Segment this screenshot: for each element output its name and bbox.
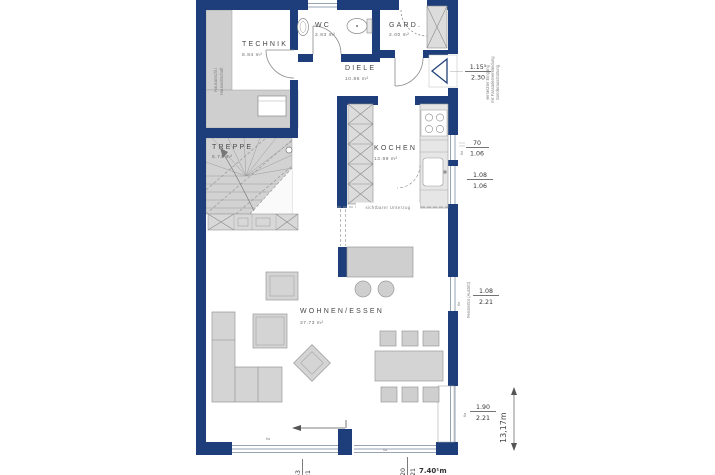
kitchen-counter (397, 104, 448, 208)
toilet-tank (367, 19, 372, 33)
dim-bottom-left-w: 2.53 (295, 470, 302, 475)
chair (380, 331, 396, 346)
beam-label: sichtbarer Unterzug (365, 205, 410, 210)
window-3 (451, 277, 456, 311)
rug (294, 345, 331, 382)
dining-table (375, 351, 443, 381)
dim-bottom-right-h: 2.21 (410, 468, 417, 475)
stool (378, 281, 394, 297)
window-1 (451, 135, 456, 160)
dim-arrow-down (511, 443, 517, 451)
hausanschluss-line1: Hausanschl./ (213, 67, 218, 92)
dim-bottom-left-h: 2.21 (305, 470, 312, 475)
dim-win2-h: 1.06 (473, 183, 487, 190)
chair (402, 331, 418, 346)
chair (402, 387, 418, 402)
room-label-wc: WC (315, 22, 331, 29)
furniture (212, 247, 443, 402)
total-height-label: 13,17m (499, 412, 508, 443)
dim-win1-h: 1.06 (470, 151, 484, 158)
dim-win4-w: 1.90 (476, 404, 490, 411)
dim-win1-w: 70 (473, 140, 481, 147)
dim-win3-h: 2.21 (479, 299, 493, 306)
room-label-kochen: KOCHEN (374, 145, 417, 152)
room-area-kochen: 13.99 m² (374, 156, 398, 162)
beam-annotation: sichtbarer Unterzug (337, 203, 448, 247)
room-area-gard: 2.00 m² (389, 32, 409, 38)
dim-win4-h: 2.21 (476, 415, 490, 422)
total-height-dimension: 13,17m (499, 387, 517, 451)
sliding-door-arrowhead (292, 425, 301, 431)
hausanschluss-note: Hausanschl./ Hauswirtschaft (213, 67, 224, 95)
entry-door-opening (399, 0, 427, 10)
wc-window (308, 0, 337, 10)
floor-plan-svg: sichtbarer Unterzug TECHNIK 8.84 m² WC 2… (0, 0, 715, 475)
dim-entrance-h: 2.30 (471, 75, 485, 82)
stair-post (286, 147, 292, 153)
washbasin-icon (298, 19, 309, 36)
room-area-diele: 10.86 m² (345, 76, 369, 82)
room-label-diele: DIELE (345, 65, 376, 72)
floor-plan-page: sichtbarer Unterzug TECHNIK 8.84 m² WC 2… (0, 0, 715, 475)
chair (423, 387, 439, 402)
window-note: Fenstertür (Austritt) (466, 281, 471, 318)
marker-fla-2: fla (456, 301, 461, 306)
room-label-technik: TECHNIK (242, 41, 288, 48)
window-2 (451, 166, 456, 204)
bottom-dimensions: 2.53 2.21 3.20 2.21 7.40¹m (295, 457, 447, 475)
dim-bottom-right-w: 3.20 (400, 468, 407, 475)
dim-win2-w: 1.08 (473, 172, 487, 179)
gard-wardrobe (427, 6, 447, 48)
chair (423, 331, 439, 346)
appliance-box (258, 96, 286, 116)
entrance-note-3: Sonderausstattung (495, 64, 500, 100)
chair (381, 387, 397, 402)
room-label-wohnen: WOHNEN/ESSEN (300, 308, 384, 315)
sink-icon (423, 158, 443, 186)
wc-door (313, 26, 341, 54)
marker-fla-3: fla (462, 412, 467, 417)
stove-icon (421, 110, 447, 136)
kitchen-tall-cupboards (348, 104, 373, 204)
room-label-treppe: TREPPE (212, 144, 253, 151)
room-area-treppe: 5.74 m² (212, 154, 232, 160)
entrance-recess (429, 55, 457, 87)
gard-door (395, 58, 423, 86)
room-area-technik: 8.84 m² (242, 52, 262, 58)
coffee-table (253, 314, 287, 348)
total-width-dim: 7.40¹m (419, 467, 447, 475)
sideboard (208, 214, 298, 230)
technik-door (266, 50, 294, 78)
stool (355, 281, 371, 297)
dim-win3-w: 1.08 (479, 288, 493, 295)
kitchen-island (347, 247, 413, 277)
marker-fla-4: fla (266, 436, 271, 441)
dim-arrow-up (511, 387, 517, 395)
hausanschluss-line2: Hauswirtschaft (219, 67, 224, 95)
room-area-wc: 2.83 m² (315, 32, 335, 38)
room-label-gard: GARD. (389, 22, 422, 29)
room-area-wohnen: 37.73 m² (300, 320, 324, 326)
marker-fla-1: fla (459, 150, 464, 155)
